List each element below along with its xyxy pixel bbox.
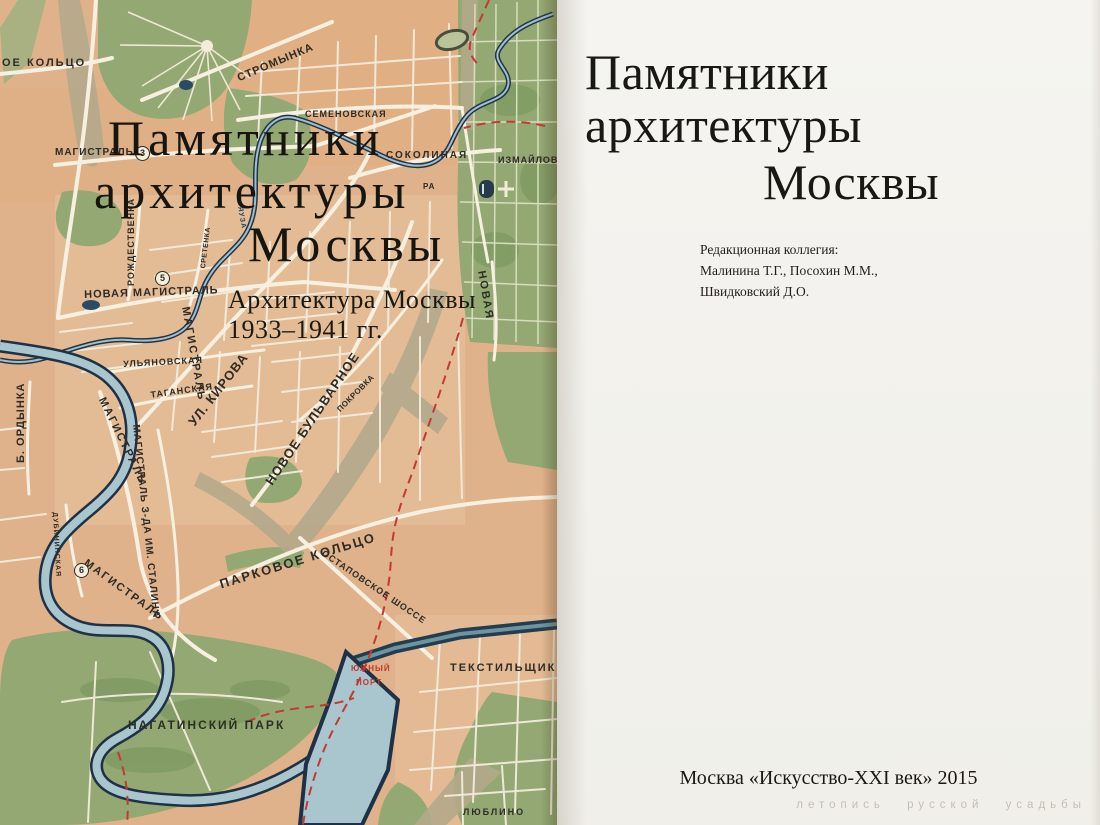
map-label: НАГАТИНСКИЙ ПАРК (128, 719, 285, 731)
map-label: СТРОМЫНКА (236, 42, 315, 84)
map-label: НОВОЕ БУЛЬВАРНОЕ (263, 350, 362, 487)
map-label: ДУБИНИНСКАЯ (51, 512, 61, 577)
editors-line2: Швидковский Д.О. (700, 281, 1100, 302)
map-label: ТЕКСТИЛЬЩИКИ (450, 663, 557, 674)
imprint-line: Москва «Искусство-XXI век» 2015 (557, 767, 1100, 790)
book-cover: ОЕ КОЛЬЦОСТРОМЫНКАСЕМЕНОВСКАЯСОКОЛИНАЯИЗ… (0, 0, 557, 825)
map-label: МАГИСТРАЛЬ З-ДА ИМ. СТАЛИНА (130, 424, 160, 619)
cover-title-line3: Москвы (248, 218, 557, 271)
map-label: ОСТАПОВСКОЕ ШОССЕ (320, 549, 428, 626)
map-label: ЛЮБЛИНО (463, 808, 525, 817)
title-page: Памятники архитектуры Москвы Редакционна… (557, 0, 1100, 825)
collection-watermark: летопись русской усадьбы (796, 799, 1086, 811)
page-title: Памятники архитектуры Москвы (585, 46, 1100, 209)
editors-line1: Малинина Т.Г., Посохин М.М., (700, 260, 1100, 281)
page-title-line3: Москвы (763, 156, 1100, 209)
map-label: ПОРТ (356, 679, 382, 687)
cover-title-block: Памятники архитектуры Москвы Архитектура… (0, 112, 557, 345)
map-label: ЮЖНЫЙ (351, 665, 391, 673)
map-badge: 6 (74, 563, 89, 578)
page-title-line2: архитектуры (585, 99, 1100, 152)
map-label: ОЕ КОЛЬЦО (2, 58, 86, 69)
editors-heading: Редакционная коллегия: (700, 239, 1100, 260)
page-title-line1: Памятники (585, 46, 1100, 99)
cover-title-line2: архитектуры (94, 165, 557, 218)
map-label: Б. ОРДЫНКА (16, 383, 27, 463)
editors-block: Редакционная коллегия: Малинина Т.Г., По… (700, 239, 1100, 302)
cover-subtitle-line1: Архитектура Москвы (228, 285, 557, 315)
cover-subtitle: Архитектура Москвы 1933–1941 гг. (228, 285, 557, 345)
cover-subtitle-line2: 1933–1941 гг. (228, 315, 557, 345)
cover-title-line1: Памятники (108, 112, 557, 165)
book-spread: ОЕ КОЛЬЦОСТРОМЫНКАСЕМЕНОВСКАЯСОКОЛИНАЯИЗ… (0, 0, 1100, 825)
map-label: ПАРКОВОЕ КОЛЬЦО (218, 530, 377, 590)
